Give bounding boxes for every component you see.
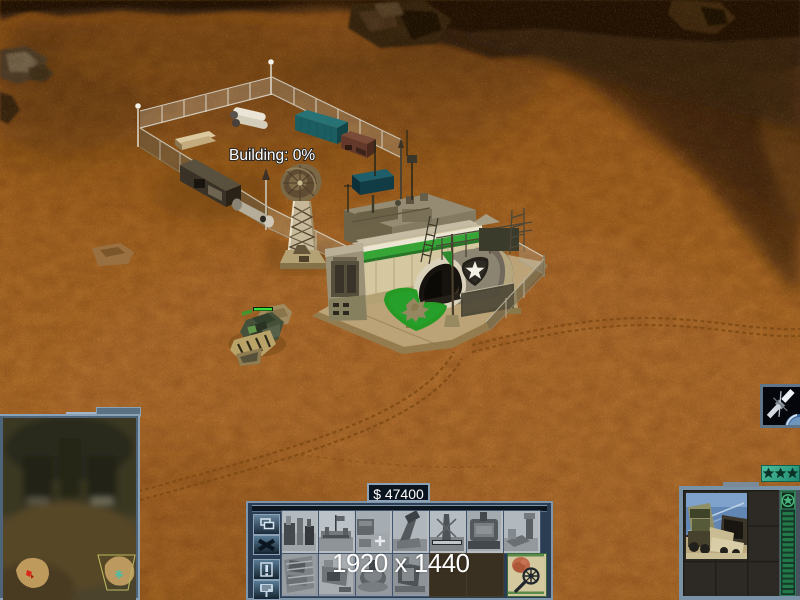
svg-text:Building: 0%: Building: 0% (229, 147, 315, 164)
